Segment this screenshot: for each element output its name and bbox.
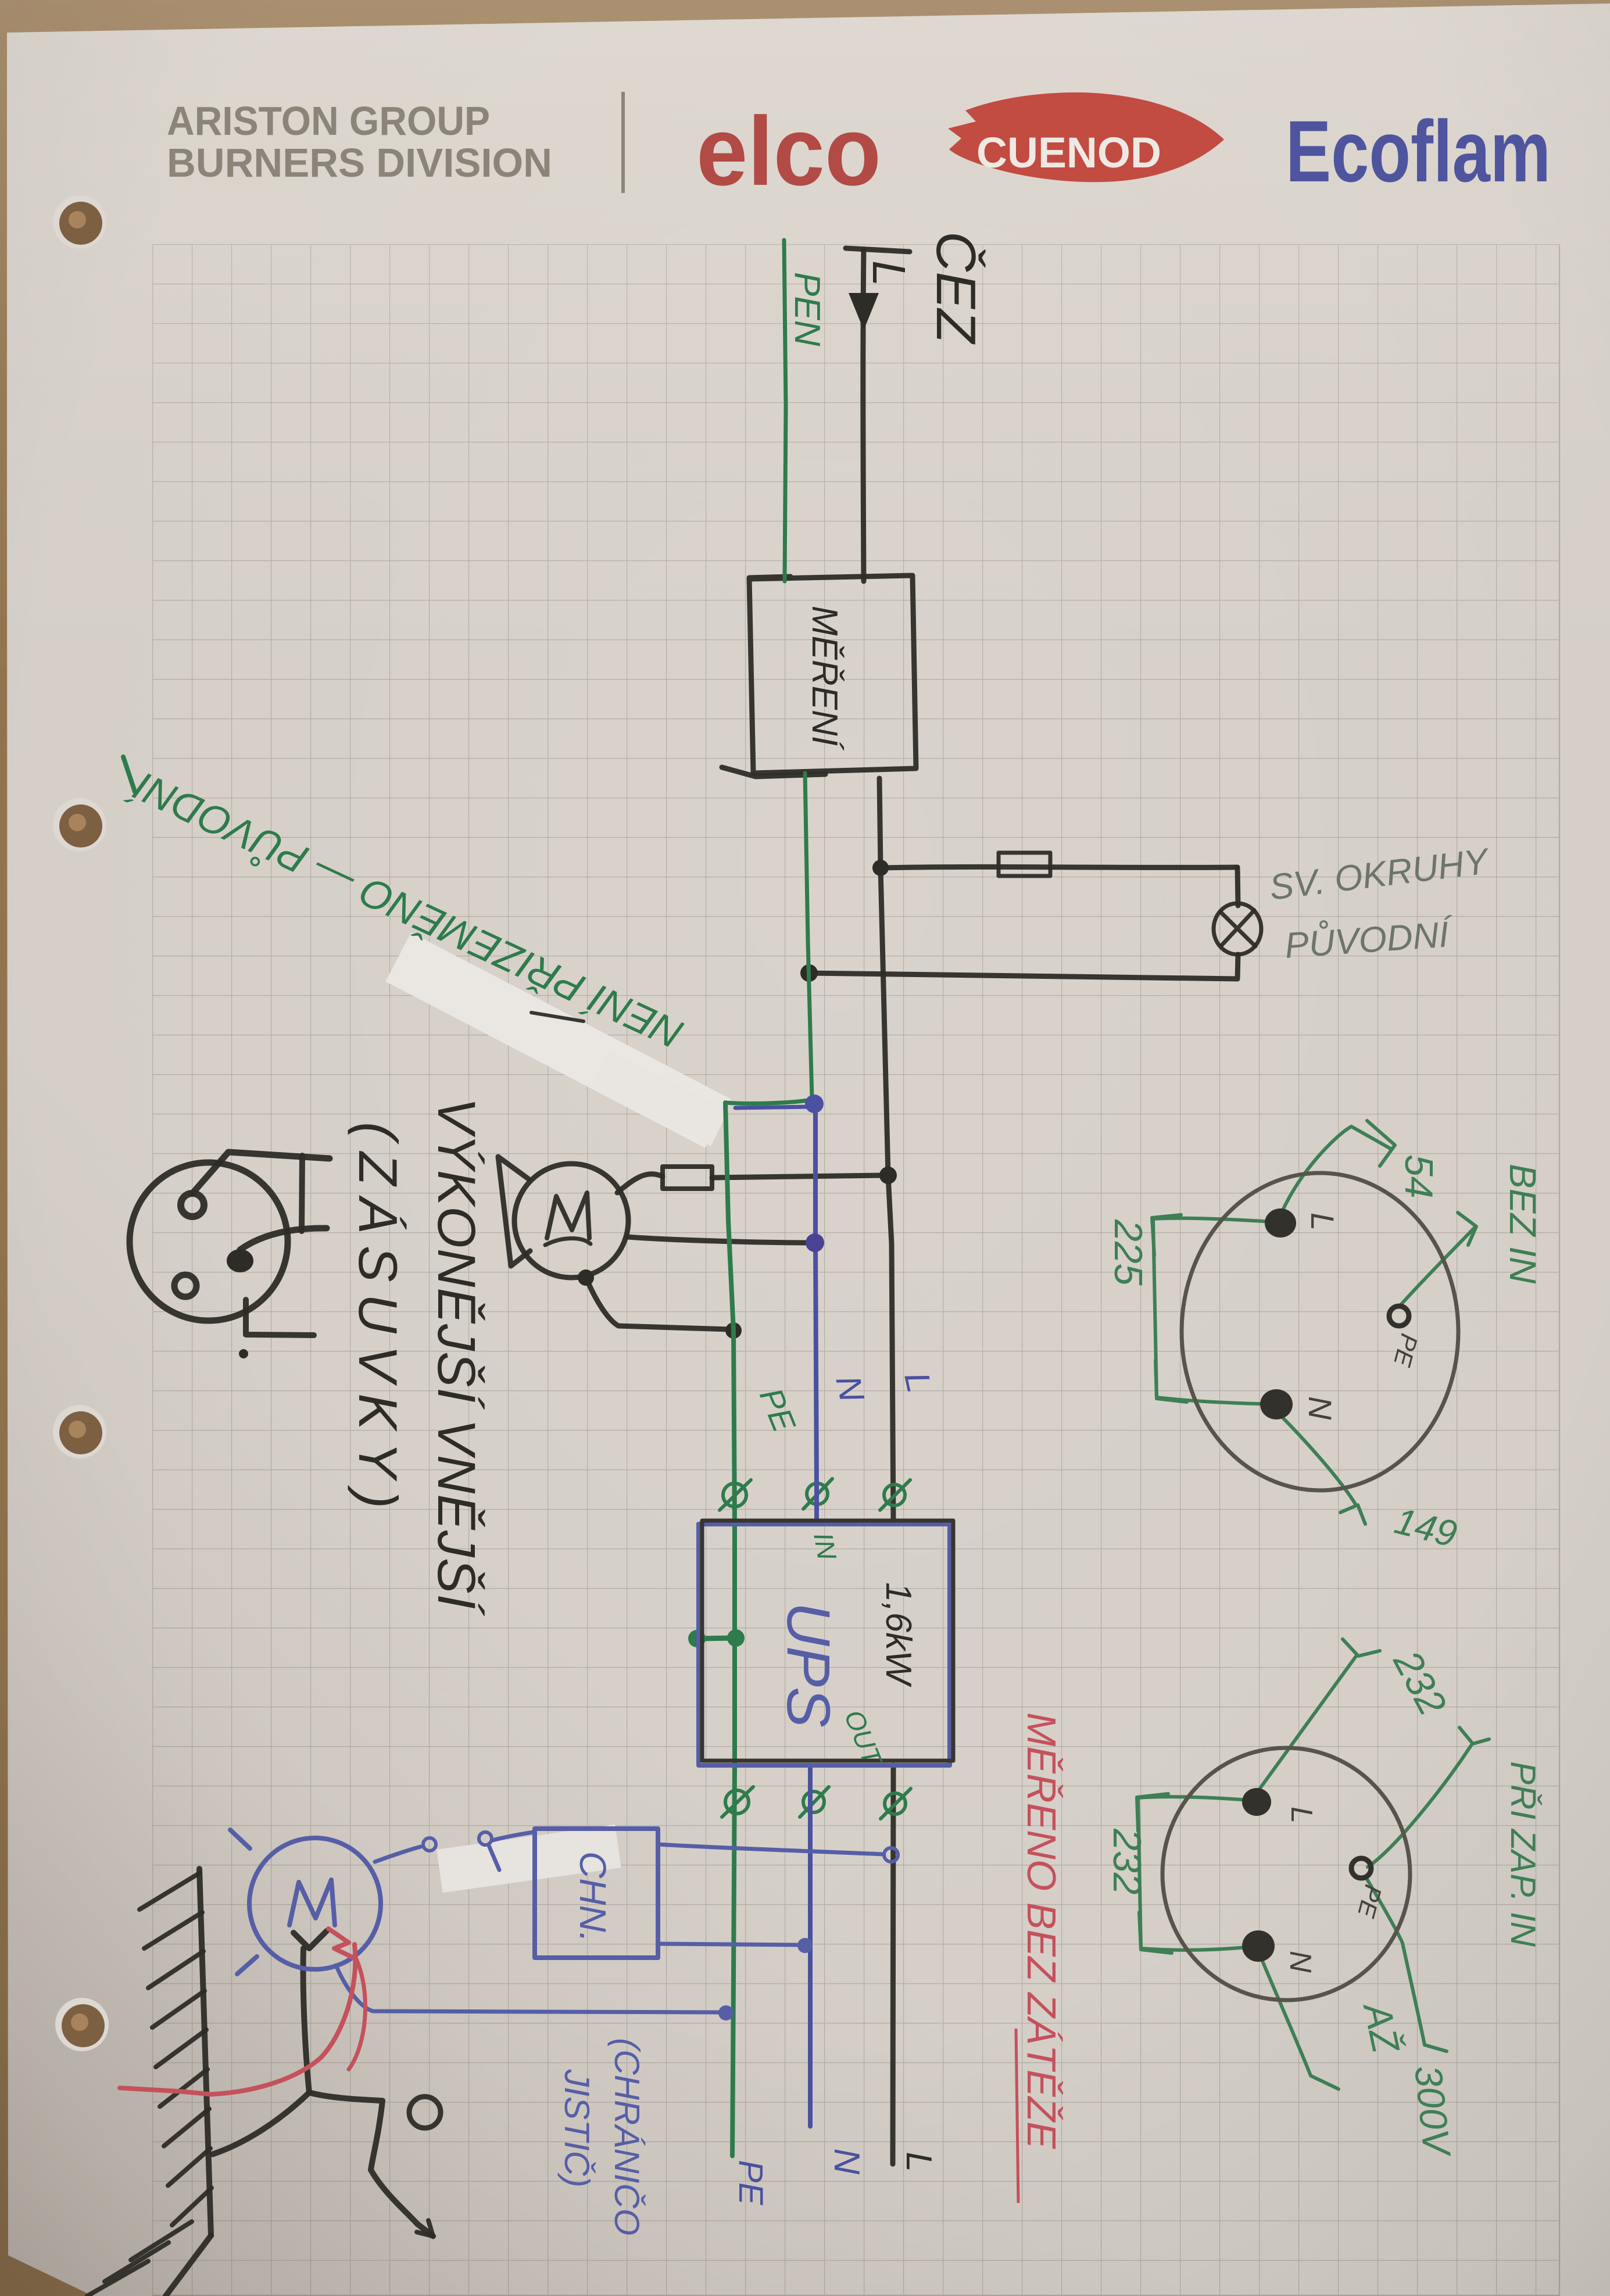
svg-text:BURNERS DIVISION: BURNERS DIVISION	[167, 140, 552, 185]
svg-text:UPS: UPS	[774, 1602, 842, 1728]
svg-text:CUENOD: CUENOD	[976, 128, 1161, 177]
svg-text:54: 54	[1397, 1154, 1441, 1199]
svg-text:ARISTON GROUP: ARISTON GROUP	[167, 98, 490, 144]
svg-text:L: L	[1285, 1807, 1318, 1823]
svg-text:VÝKONĚJŠÍ VNĚJŠÍ: VÝKONĚJŠÍ VNĚJŠÍ	[427, 1097, 486, 1616]
svg-text:PE: PE	[732, 2160, 770, 2206]
svg-text:elco: elco	[696, 96, 881, 206]
svg-text:N: N	[1302, 1396, 1339, 1420]
svg-text:IN: IN	[808, 1530, 842, 1562]
svg-text:CHN.: CHN.	[572, 1851, 614, 1942]
svg-text:MĚŘENÍ: MĚŘENÍ	[804, 606, 845, 751]
svg-text:N: N	[827, 2148, 867, 2175]
svg-text:L: L	[863, 260, 915, 287]
svg-text:BEZ IN: BEZ IN	[1502, 1164, 1544, 1284]
svg-text:N: N	[1283, 1951, 1317, 1973]
svg-text:MĚŘENO BEZ ZÁTĚŽE: MĚŘENO BEZ ZÁTĚŽE	[1019, 1712, 1064, 2150]
svg-text:L: L	[1304, 1213, 1341, 1231]
svg-text:PŘI ZAP. IN: PŘI ZAP. IN	[1504, 1761, 1543, 1947]
svg-text:JISTIČ): JISTIČ)	[557, 2069, 596, 2187]
svg-text:(ZÁSUVKY): (ZÁSUVKY)	[348, 1122, 409, 1508]
svg-text:(CHRÁNIČO: (CHRÁNIČO	[607, 2038, 646, 2236]
svg-text:Ecoflam: Ecoflam	[1286, 102, 1551, 200]
svg-text:PEN: PEN	[787, 272, 827, 346]
svg-text:ČEZ: ČEZ	[925, 231, 987, 345]
svg-text:232: 232	[1105, 1828, 1149, 1894]
svg-text:L: L	[899, 2152, 939, 2172]
svg-text:225: 225	[1106, 1219, 1150, 1286]
svg-text:1,6kW: 1,6kW	[878, 1582, 918, 1687]
